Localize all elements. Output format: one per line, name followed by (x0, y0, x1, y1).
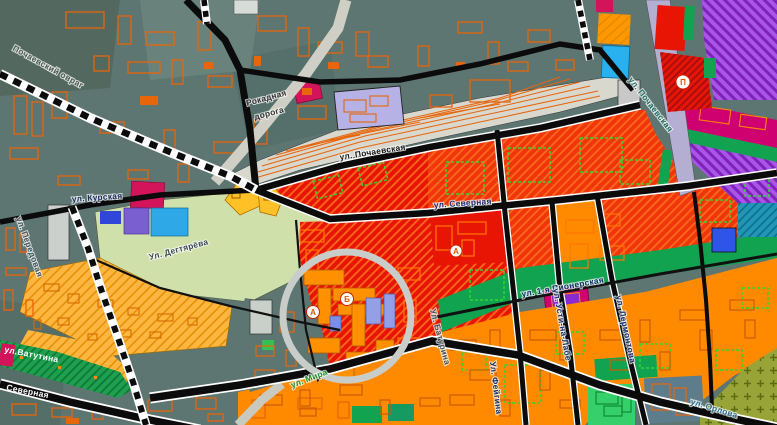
zone-red-block-west (430, 210, 508, 266)
map-canvas[interactable]: А Б П А Почаевский овраг Рокадная дорога… (0, 0, 777, 425)
zoning-map: А Б П А Почаевский овраг Рокадная дорога… (0, 0, 777, 425)
poi-marker: Б (341, 293, 354, 306)
poi-marker: П (676, 75, 690, 89)
poi-marker-letter: А (453, 247, 459, 256)
poi-marker-letter: А (310, 308, 316, 317)
poi-marker: А (450, 245, 462, 257)
poi-marker-letter: Б (344, 295, 350, 304)
poi-marker: А (307, 306, 320, 319)
poi-marker-letter: П (680, 78, 686, 87)
